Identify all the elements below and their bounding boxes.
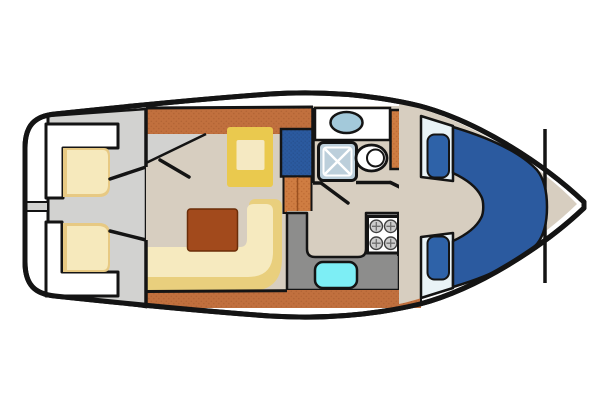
swim-platform-step (25, 202, 48, 211)
deck-plan-svg (0, 0, 600, 400)
toilet (356, 145, 387, 171)
blue-cabinet (281, 129, 313, 177)
dinette-seat-pad (237, 140, 265, 170)
salon-top-wall (146, 107, 313, 108)
boat-floorplan-canvas (0, 0, 600, 400)
berth-pillow-top (428, 135, 450, 178)
dinette-table (188, 209, 238, 251)
bathroom-sink (331, 112, 363, 133)
aft-cushion-bottom-pad (67, 226, 108, 270)
aft-cushion-top-pad (67, 150, 108, 194)
companionway (281, 129, 313, 213)
galley-sink (315, 262, 357, 288)
berth-pillow-bottom (428, 237, 450, 280)
